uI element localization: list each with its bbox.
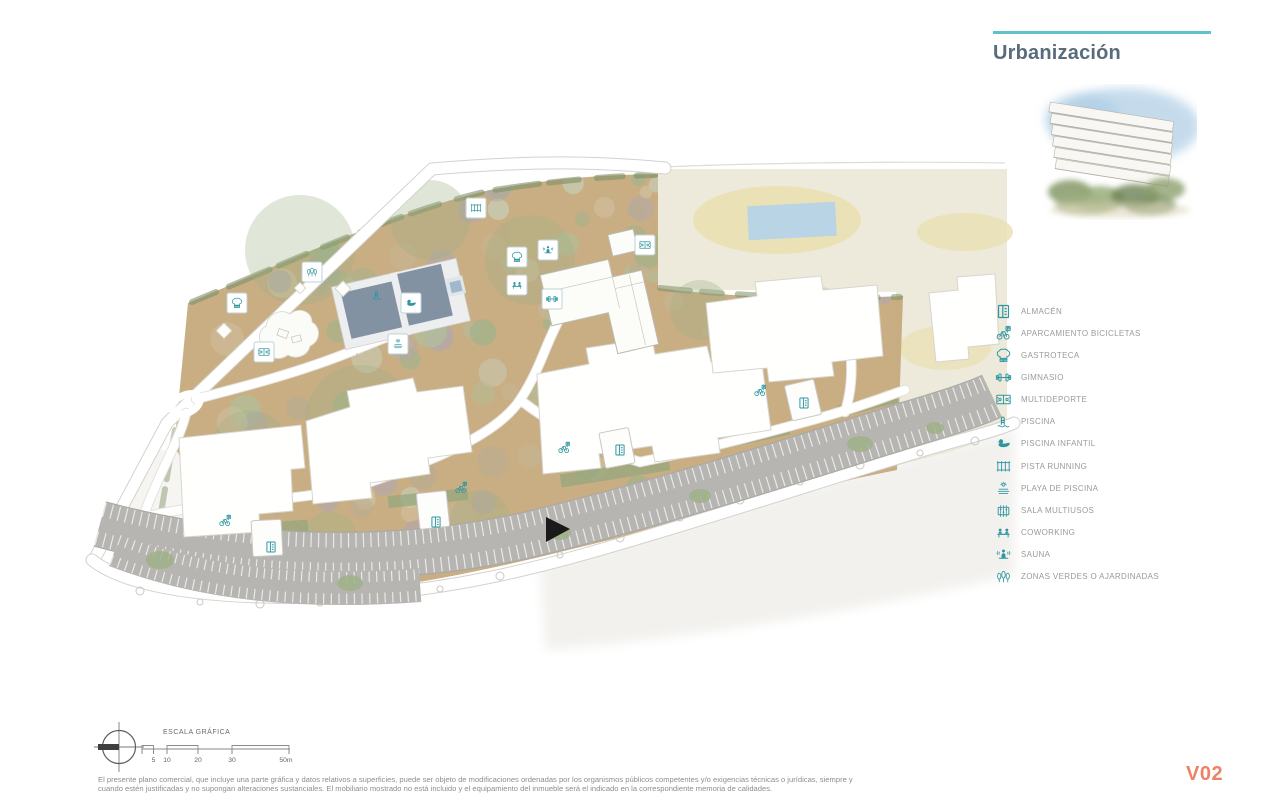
legend-item-piscina-infantil: PISCINA INFANTIL: [993, 433, 1159, 455]
page-title: Urbanización: [993, 42, 1121, 65]
legend-item-gimnasio: GIMNASIO: [993, 366, 1159, 388]
legend-item-label: PLAYA DE PISCINA: [1021, 484, 1098, 493]
almacen-icon: [993, 303, 1013, 320]
legend-item-playa-de-piscina: PLAYA DE PISCINA: [993, 477, 1159, 499]
legend-item-gastroteca: GASTROTECA: [993, 344, 1159, 366]
svg-text:10: 10: [163, 757, 171, 764]
gimnasio-icon: [993, 369, 1013, 386]
legend-item-sala-multiusos: SALA MULTIUSOS: [993, 499, 1159, 521]
svg-text:5: 5: [152, 757, 156, 764]
piscina-infantil-icon: [993, 435, 1013, 452]
legend-item-label: PISCINA: [1021, 417, 1055, 426]
legend-item-label: PISTA RUNNING: [1021, 462, 1087, 471]
legend-item-pista-running: PISTA RUNNING: [993, 455, 1159, 477]
coworking-icon: [993, 524, 1013, 541]
svg-text:50m: 50m: [279, 757, 293, 764]
plan-version-badge: V02: [1186, 763, 1223, 786]
piscina-icon: [993, 413, 1013, 430]
page: Urbanización: [0, 0, 1280, 800]
sauna-icon: [993, 546, 1013, 563]
disclaimer-line-1: El presente plano comercial, que incluye…: [98, 775, 946, 784]
legend-item-label: ZONAS VERDES O AJARDINADAS: [1021, 572, 1159, 581]
scale-bar: 5 10 20 30 50m: [140, 743, 300, 767]
legend-item-almacen: ALMACÉN: [993, 300, 1159, 322]
legend-item-aparcamiento-bicicletas: APARCAMIENTO BICICLETAS: [993, 322, 1159, 344]
svg-text:20: 20: [194, 757, 202, 764]
building-watercolor-illustration: [1025, 84, 1197, 220]
north-compass-icon: [93, 721, 145, 773]
legend-item-label: SALA MULTIUSOS: [1021, 506, 1094, 515]
pista-running-icon: [993, 458, 1013, 475]
legend-item-piscina: PISCINA: [993, 411, 1159, 433]
legend-item-sauna: SAUNA: [993, 544, 1159, 566]
legend-item-label: SAUNA: [1021, 550, 1050, 559]
legend-item-zonas-verdes: ZONAS VERDES O AJARDINADAS: [993, 566, 1159, 588]
disclaimer: El presente plano comercial, que incluye…: [98, 775, 946, 793]
disclaimer-line-2: cuando estén justificadas y no supongan …: [98, 784, 946, 793]
playa-de-piscina-icon: [993, 480, 1013, 497]
scale-title: ESCALA GRÁFICA: [163, 729, 230, 736]
header-rule: [993, 31, 1211, 34]
legend-item-multideporte: MULTIDEPORTE: [993, 389, 1159, 411]
multideporte-icon: [993, 391, 1013, 408]
legend-item-label: GIMNASIO: [1021, 373, 1064, 382]
legend: ALMACÉNAPARCAMIENTO BICICLETASGASTROTECA…: [993, 300, 1159, 588]
aparcamiento-bicicletas-icon: [993, 325, 1013, 342]
sala-multiusos-icon: [993, 502, 1013, 519]
svg-text:30: 30: [228, 757, 236, 764]
zonas-verdes-icon: [993, 568, 1013, 585]
legend-item-label: MULTIDEPORTE: [1021, 395, 1087, 404]
legend-item-label: COWORKING: [1021, 528, 1075, 537]
legend-item-label: PISCINA INFANTIL: [1021, 439, 1096, 448]
gastroteca-icon: [993, 347, 1013, 364]
legend-item-coworking: COWORKING: [993, 521, 1159, 543]
legend-item-label: APARCAMIENTO BICICLETAS: [1021, 329, 1141, 338]
legend-item-label: GASTROTECA: [1021, 351, 1080, 360]
legend-item-label: ALMACÉN: [1021, 307, 1062, 316]
